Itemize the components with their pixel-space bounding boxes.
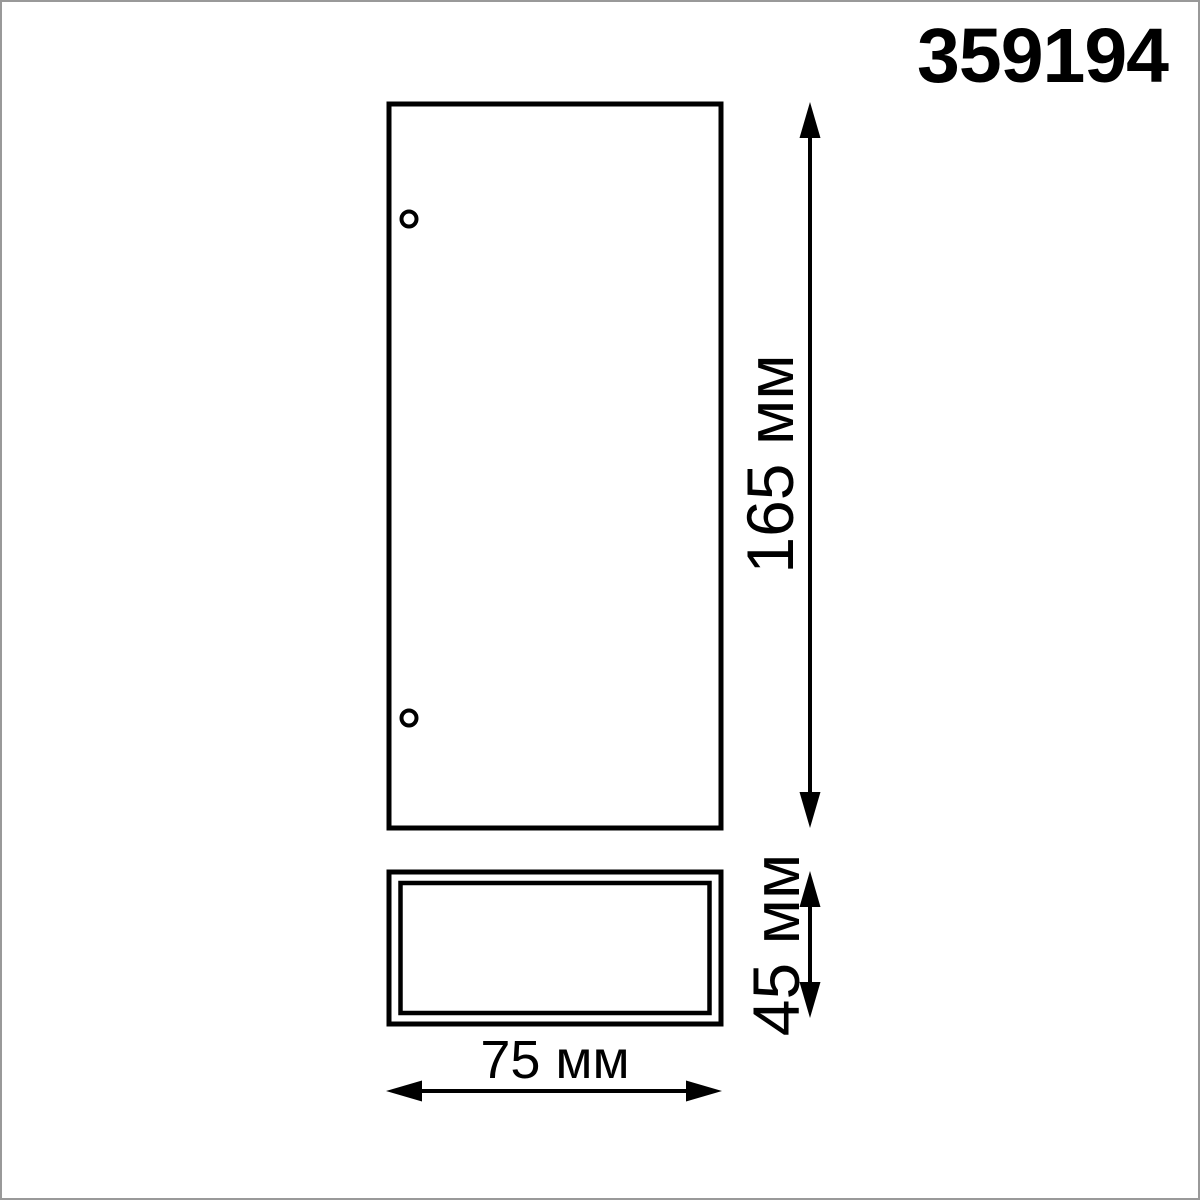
width-dimension-label: 75 мм <box>480 1033 629 1087</box>
height-dimension-label: 165 мм <box>737 354 803 573</box>
depth-dimension-label: 45 мм <box>743 854 809 1037</box>
side-view-inner-outline <box>401 883 710 1013</box>
mounting-hole-bottom-icon <box>402 711 417 726</box>
height-arrow-down-icon <box>800 792 821 828</box>
height-arrow-up-icon <box>800 102 821 138</box>
dimension-drawing-page: 359194 165 мм 45 мм 75 мм <box>0 0 1200 1200</box>
width-arrow-right-icon <box>686 1081 722 1102</box>
mounting-hole-top-icon <box>402 212 417 227</box>
drawing-canvas <box>2 2 1200 1200</box>
front-view-outline <box>389 104 721 828</box>
width-arrow-left-icon <box>386 1081 422 1102</box>
